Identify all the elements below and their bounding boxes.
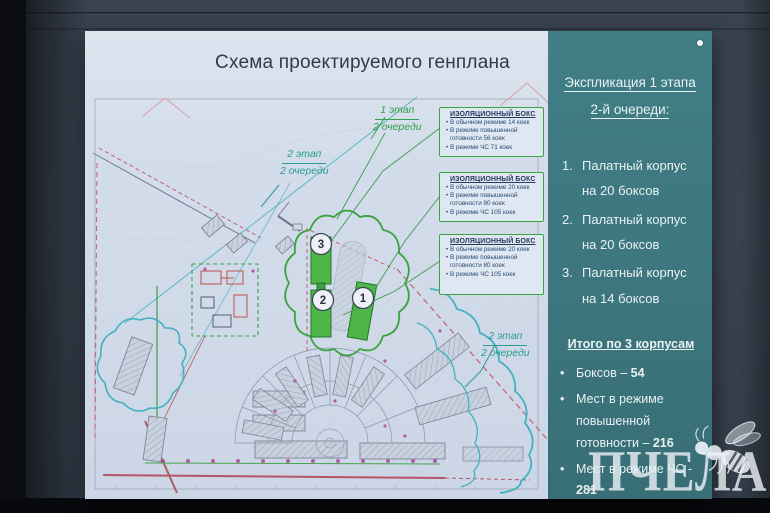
genplan-board: 3 2 1 Схема проектируемого генплана 1 эт… [85, 31, 712, 499]
total-row: • Мест в режиме повышенной готовности – … [560, 389, 702, 455]
wall-right-shade [740, 0, 770, 513]
photo-of-genplan-board: 3 2 1 Схема проектируемого генплана 1 эт… [0, 0, 770, 513]
stage-label-2: 2 этап 2 очереди [280, 147, 329, 179]
stage-label-3: 2 этап 2 очереди [481, 329, 530, 361]
board-title: Схема проектируемого генплана [131, 52, 594, 74]
wall-seam [0, 12, 770, 15]
building-3-number: 3 [318, 239, 324, 251]
contour-lines [95, 127, 415, 284]
list-item: 3. Палатный корпус на 14 боксов [562, 260, 702, 311]
building-1-number: 1 [360, 293, 367, 305]
total-row: • Боксов – 54 [560, 363, 702, 385]
bullet: • [560, 363, 576, 385]
isolation-box-1: ИЗОЛЯЦИОННЫЙ БОКС •В обычном режиме 14 к… [439, 107, 544, 157]
corpus-list: 1. Палатный корпус на 20 боксов 2. Палат… [562, 153, 702, 311]
isolation-box-3: ИЗОЛЯЦИОННЫЙ БОКС •В обычном режиме 20 к… [439, 234, 544, 295]
explication-sidebar: Экспликация 1 этапа 2-й очереди: 1. Пала… [548, 31, 712, 499]
totals-section: Итого по 3 корпусам • Боксов – 54 • Мест… [560, 337, 702, 502]
wall-left-edge [0, 0, 26, 513]
building-2-number: 2 [320, 295, 326, 307]
screw-pin [697, 40, 703, 46]
total-row: • Мест в режиме ЧС - 281 [560, 459, 702, 503]
wall-seam [0, 28, 770, 30]
wall-left-shade [26, 0, 88, 513]
small-buildings-topleft [201, 202, 302, 254]
sidebar-heading: Экспликация 1 этапа 2-й очереди: [548, 69, 712, 123]
list-item: 2. Палатный корпус на 20 боксов [562, 207, 702, 258]
plan-paper: 3 2 1 Схема проектируемого генплана 1 эт… [85, 31, 548, 499]
stage-label-1: 1 этап 2 очереди [373, 103, 422, 135]
list-item: 1. Палатный корпус на 20 боксов [562, 153, 702, 204]
bullet: • [560, 389, 576, 455]
isolation-box-2: ИЗОЛЯЦИОННЫЙ БОКС •В обычном режиме 20 к… [439, 172, 544, 222]
left-tree-cloud [97, 318, 186, 411]
bullet: • [560, 459, 576, 503]
